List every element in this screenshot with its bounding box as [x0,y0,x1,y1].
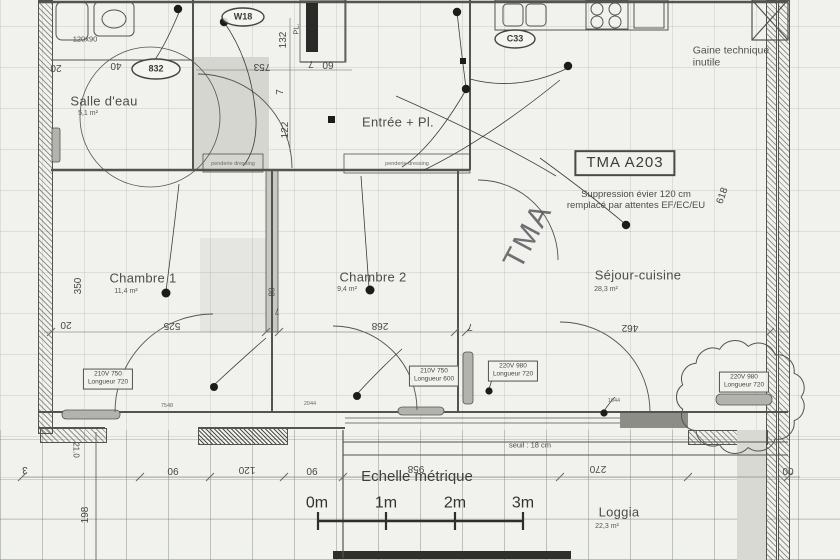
walls [38,0,788,560]
door-sill-dark [620,412,688,428]
bottom-scan-band [333,551,571,559]
plan-linework [0,0,840,560]
technical-shaft-icon [752,0,788,40]
kitchen-fixtures [495,0,668,30]
radiators [52,128,772,419]
scan-shadow [200,238,266,332]
scale-bar [318,512,523,530]
floor-plan-canvas: Salle d'eau5,1 m²Entrée + Pl.Chambre 111… [0,0,840,560]
water-heater [306,3,318,52]
